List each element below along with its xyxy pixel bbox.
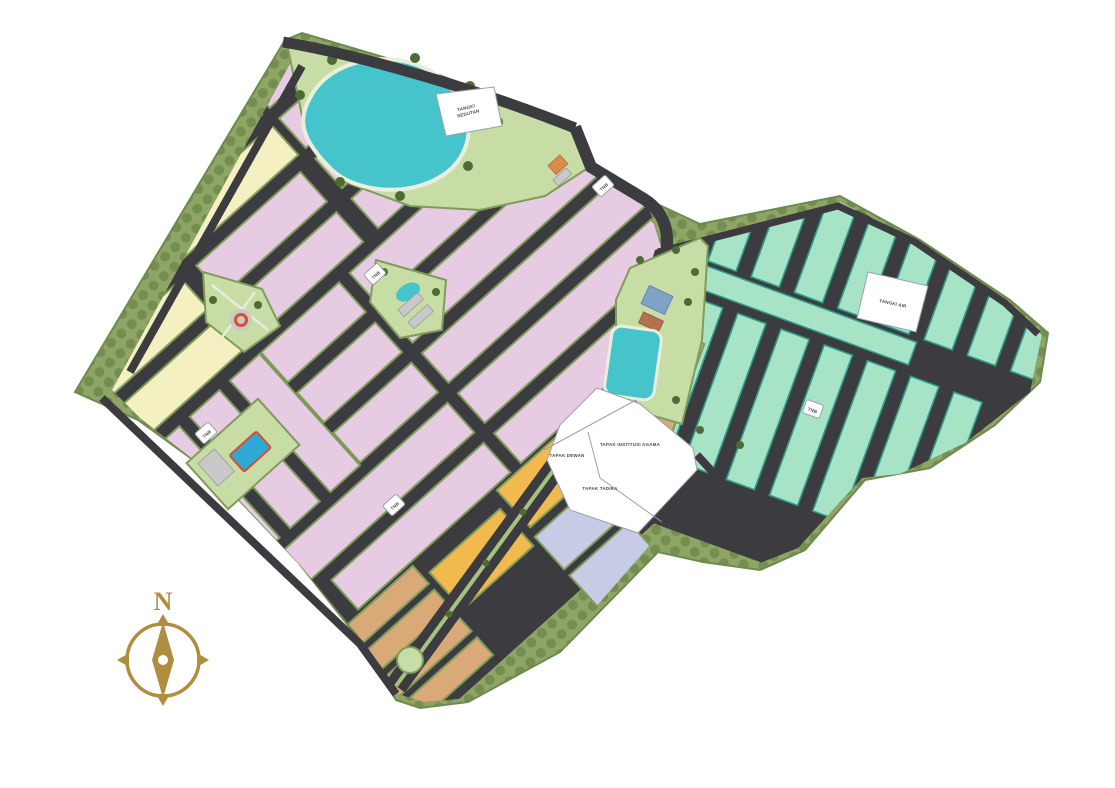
compass-needle-hole: [158, 655, 168, 665]
tree-icon: [636, 256, 644, 264]
tree-icon: [483, 560, 490, 567]
retention-pond: [603, 325, 662, 401]
tree-icon: [432, 288, 440, 296]
tree-icon: [672, 396, 680, 404]
tree-icon: [295, 90, 305, 100]
tree-icon: [684, 298, 692, 306]
compass-rose: N: [117, 587, 209, 706]
label-tapak-tadika: TAPAK TADIKA: [582, 486, 618, 491]
tail-park: [397, 647, 423, 673]
tree-icon: [254, 301, 262, 309]
housing-row: [1054, 255, 1115, 397]
tree-icon: [209, 296, 217, 304]
label-tapak-dewan: TAPAK DEWAN: [549, 453, 584, 458]
compass-tick-west: [117, 653, 129, 667]
tree-icon: [672, 246, 680, 254]
tree-icon: [410, 53, 420, 63]
tree-icon: [335, 177, 345, 187]
tree-icon: [520, 509, 527, 516]
label-tapak-institusi-agama: TAPAK INSTITUSI AGAMA: [600, 442, 661, 447]
tree-icon: [463, 161, 473, 171]
tree-icon: [691, 268, 699, 276]
master-plan-svg: TANGKI SEDUTAN TANGKI AIR TAPAK INSTITUS…: [0, 0, 1115, 788]
master-plan-canvas: TANGKI SEDUTAN TANGKI AIR TAPAK INSTITUS…: [0, 0, 1115, 788]
roundabout: [230, 309, 252, 331]
tree-icon: [446, 611, 453, 618]
tree-icon: [736, 441, 744, 449]
compass-tick-east: [197, 653, 209, 667]
tree-icon: [696, 426, 704, 434]
north-label: N: [154, 587, 173, 616]
tree-icon: [395, 191, 405, 201]
